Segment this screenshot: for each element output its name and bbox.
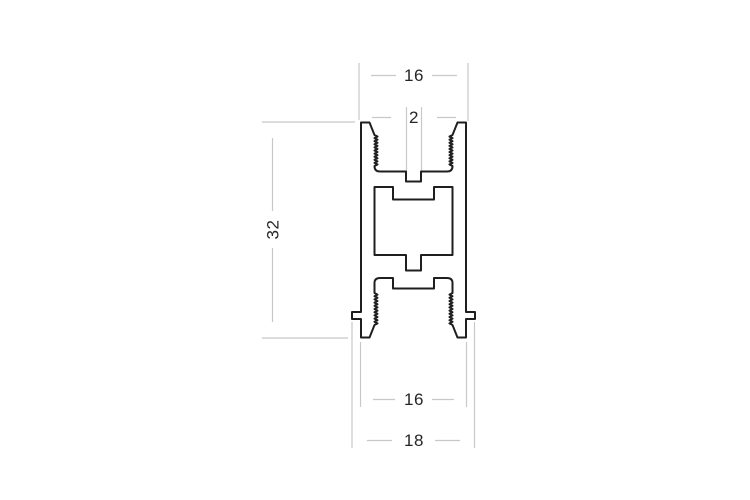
profile-cavity bbox=[375, 187, 453, 271]
profile-technical-drawing: 16 2 32 16 18 bbox=[0, 0, 750, 500]
dimension-label-overall-width: 18 bbox=[404, 431, 424, 450]
dimension-label-height: 32 bbox=[264, 220, 283, 240]
dimension-labels: 16 2 32 16 18 bbox=[264, 66, 424, 450]
dimension-overall-width-lines bbox=[352, 322, 475, 448]
dimension-label-bottom-width: 16 bbox=[404, 390, 424, 409]
drawing-canvas: 16 2 32 16 18 bbox=[0, 0, 750, 500]
dimension-label-top-width: 16 bbox=[404, 66, 424, 85]
profile-outline bbox=[352, 123, 475, 338]
dimension-label-slot-width: 2 bbox=[409, 108, 419, 127]
profile bbox=[352, 123, 475, 338]
